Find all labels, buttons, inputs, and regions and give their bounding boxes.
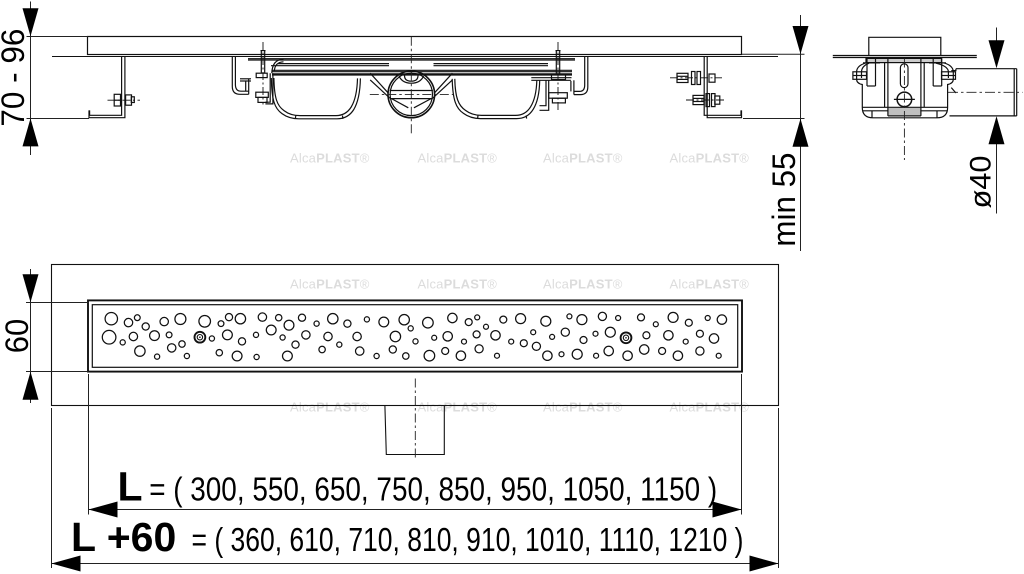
svg-text:min 55: min 55 [766,153,802,247]
svg-text:AlcaPLAST®: AlcaPLAST® [290,277,370,292]
svg-text:AlcaPLAST®: AlcaPLAST® [543,400,623,415]
svg-text:AlcaPLAST®: AlcaPLAST® [670,151,750,166]
svg-text:AlcaPLAST®: AlcaPLAST® [290,151,370,166]
svg-text:60: 60 [0,319,35,354]
svg-text:ø40: ø40 [965,156,998,209]
svg-text:= ( 360, 610, 710, 810, 910, 1: = ( 360, 610, 710, 810, 910, 1010, 1110,… [192,521,744,558]
svg-text:AlcaPLAST®: AlcaPLAST® [543,277,623,292]
svg-text:70 - 96: 70 - 96 [0,29,31,127]
svg-text:AlcaPLAST®: AlcaPLAST® [418,400,498,415]
svg-text:AlcaPLAST®: AlcaPLAST® [670,277,750,292]
svg-text:= ( 300, 550, 650, 750, 850, 9: = ( 300, 550, 650, 750, 850, 950, 1050, … [149,471,717,508]
svg-text:L: L [118,464,143,510]
svg-text:AlcaPLAST®: AlcaPLAST® [543,151,623,166]
svg-text:AlcaPLAST®: AlcaPLAST® [290,400,370,415]
svg-text:L +60: L +60 [71,514,176,560]
svg-text:AlcaPLAST®: AlcaPLAST® [670,400,750,415]
svg-text:AlcaPLAST®: AlcaPLAST® [418,151,498,166]
svg-text:AlcaPLAST®: AlcaPLAST® [418,277,498,292]
